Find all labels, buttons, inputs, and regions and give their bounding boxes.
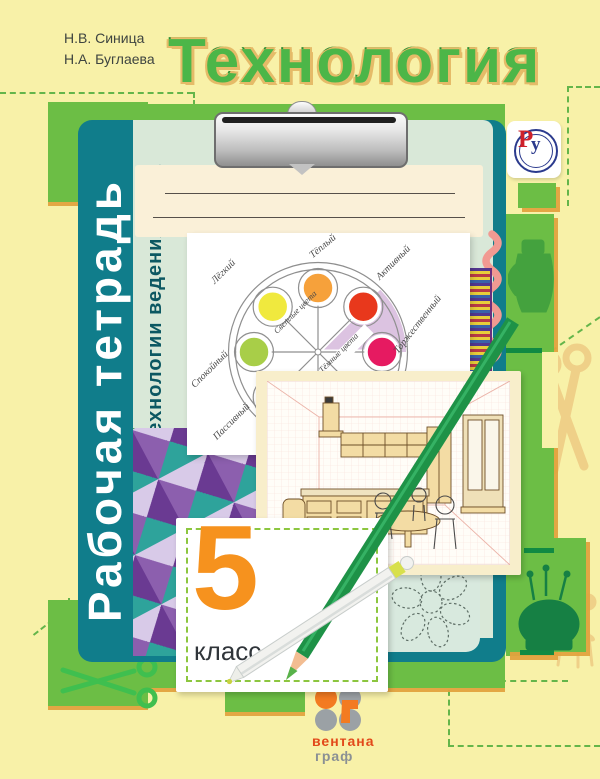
pincushion-icon (512, 560, 586, 652)
clip-icon (214, 112, 408, 168)
writing-line (153, 217, 465, 218)
authors: Н.В. Синица Н.А. Буглаева (64, 28, 155, 70)
dashed-line (567, 86, 569, 206)
dashed-line (448, 680, 450, 745)
publisher-name-top: вентана (312, 733, 375, 749)
book-cover: Н.В. Синица Н.А. Буглаева Технология Р у (0, 0, 600, 779)
grade-word: класс (194, 636, 261, 667)
ventana-graf-monogram (312, 686, 370, 732)
ru-publisher-logo: Р у (507, 121, 561, 178)
panel-notch (542, 352, 558, 448)
braid-ribbon-icon (467, 268, 492, 378)
ru-logo-letter-u: у (531, 134, 541, 156)
publisher-name-bottom: граф (315, 748, 353, 764)
scissors-outline-icon (58, 658, 163, 710)
panel-accent (524, 548, 554, 553)
jug-icon (508, 236, 556, 318)
publisher-logo: вентана граф (312, 686, 402, 737)
clip-notch (289, 164, 315, 175)
author-1: Н.В. Синица (64, 28, 155, 49)
panel-accent (506, 348, 542, 353)
name-panel (135, 165, 483, 237)
grade-card: 5 класс (176, 518, 388, 692)
writing-line (165, 193, 455, 194)
dashed-line (448, 745, 600, 747)
author-2: Н.А. Буглаева (64, 49, 155, 70)
book-title: Технология (168, 26, 600, 97)
grade-number: 5 (192, 502, 259, 634)
dashed-line (0, 92, 193, 94)
green-panel (518, 183, 556, 208)
series-title: Рабочая тетрадь (79, 145, 131, 655)
